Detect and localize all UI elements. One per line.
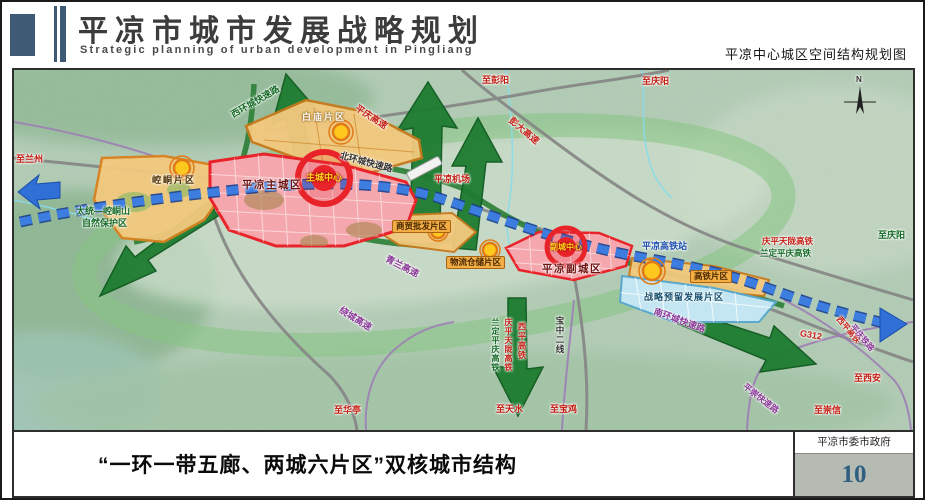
airport-label: 平凉机场 [434,174,470,185]
map-sheet-title: 平凉中心城区空间结构规划图 [725,44,907,63]
district-label-shangmao: 商贸批发片区 [392,220,451,233]
district-label-sub-city: 平凉副城区 [542,264,602,275]
planning-map: 至兰州 太统—崆峒山 自然保护区 崆峒片区 平凉主城区 主城中心 白庙片区 西环… [12,68,915,432]
direction-label-baoji: 至宝鸡 [550,404,577,415]
page-header: 平凉市城市发展战略规划 Strategic planning of urban … [2,2,923,66]
district-label-baimiao: 白庙片区 [302,112,346,123]
direction-label-xian: 至西安 [854,373,881,384]
direction-label-huating: 至华亭 [334,405,361,416]
agency-label: 平凉市委市政府 [795,432,913,454]
rail-label-ldpq-right: 兰定平庆高铁 [760,248,811,259]
rail-label-ldpq-vertical: 兰定平庆高铁 [490,318,501,372]
logo-icon [10,14,35,56]
rail-label-baozhong: 宝中二线 [554,316,565,354]
station-label-hsr: 平凉高铁站 [642,241,687,252]
page-footer: “一环一带五廊、两城六片区”双核城市结构 平凉市委市政府 10 [12,432,915,498]
nature-reserve-label-line2: 自然保护区 [82,218,127,229]
structure-caption: “一环一带五廊、两城六片区”双核城市结构 [98,449,517,479]
direction-label-qingyang-right: 至庆阳 [878,230,905,241]
nature-reserve-label-line1: 太统—崆峒山 [76,206,130,217]
direction-label-chongxin: 至崇信 [814,405,841,416]
district-label-kongtong: 崆峒片区 [152,175,196,186]
direction-label-lanzhou: 至兰州 [16,154,43,165]
core-label-main: 主城中心 [306,173,342,184]
page-number-box: 平凉市委市政府 10 [793,432,913,496]
planning-page: 平凉市城市发展战略规划 Strategic planning of urban … [0,0,925,500]
logo-bar-icon [60,6,66,62]
rail-label-xiping-vertical: 西平高铁 [516,322,527,360]
rail-label-qptl-right: 庆平天陇高铁 [762,236,813,247]
direction-label-pengyang: 至彭阳 [482,75,509,86]
rail-label-qptl-vertical: 庆平天陇高铁 [503,318,514,372]
district-label-wuliu: 物流仓储片区 [446,256,505,269]
direction-label-tianshui: 至天水 [496,404,523,415]
page-number: 10 [795,454,913,496]
district-label-reserved: 战略预留发展片区 [644,292,724,303]
district-label-main-city: 平凉主城区 [242,180,302,191]
direction-label-qingyang-top: 至庆阳 [642,76,669,87]
logo-bar-icon [54,6,57,62]
district-label-gaotie: 高铁片区 [690,270,732,283]
core-label-sub: 副城中心 [550,242,582,253]
page-subtitle: Strategic planning of urban development … [80,44,474,56]
compass-n-label: N [856,74,862,85]
